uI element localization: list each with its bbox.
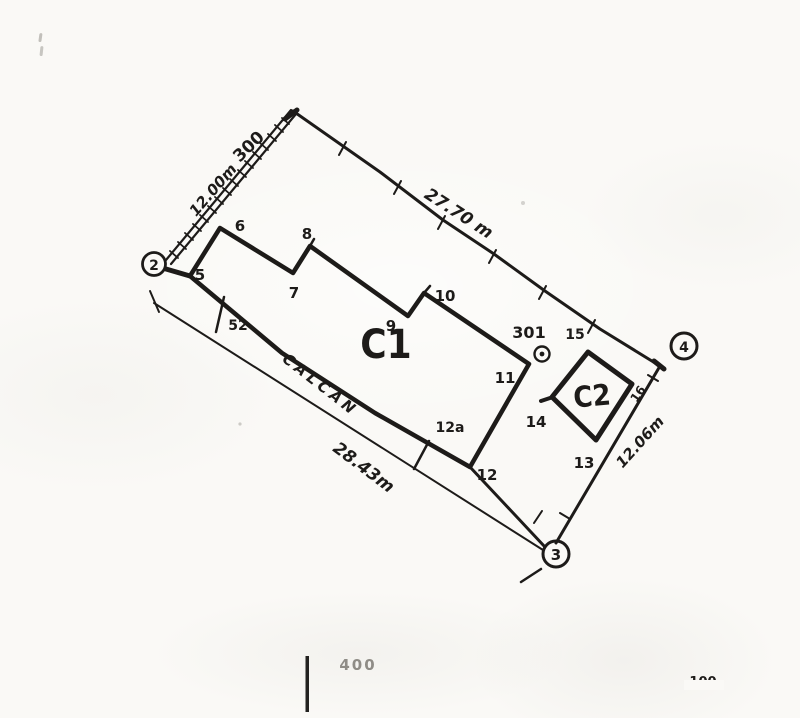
point-7-label: 7 <box>289 284 299 302</box>
corner-mark-4 <box>654 361 664 369</box>
point-11-label: 11 <box>495 369 516 387</box>
point-301-marker-dot <box>540 352 545 357</box>
dimension-start-tick <box>150 291 159 312</box>
point-9-label: 9 <box>386 317 396 335</box>
street-frontage-rail-inner <box>171 114 296 264</box>
point-300-label: 300 <box>229 127 269 166</box>
point-13-label: 13 <box>574 454 595 472</box>
point-52-label: 52 <box>228 318 247 334</box>
street-frontage-hatching <box>170 118 289 258</box>
building-c2-corner-nub <box>541 397 553 401</box>
station-2-label: 2 <box>149 258 159 274</box>
scanned-page: 2 3 4 C1 C2 12.00m 27.70 m 28.43m 12.06m… <box>0 0 800 718</box>
building-c2-label: C2 <box>572 377 612 414</box>
point-15-label: 15 <box>565 327 584 343</box>
dimension-line <box>154 303 543 550</box>
wall-tick-12a <box>414 441 429 469</box>
station-4-label: 4 <box>679 340 689 356</box>
point-301-label: 301 <box>512 323 545 342</box>
point-10-label: 10 <box>435 287 456 305</box>
margin-number-400: 400 <box>339 656 376 674</box>
point-12a-label: 12a <box>436 420 465 436</box>
corner-mark-5 <box>166 269 190 276</box>
building-c1-corner-overshoots <box>310 239 430 293</box>
station-3-label: 3 <box>551 546 561 564</box>
point-12-label: 12 <box>477 466 498 484</box>
point-14-label: 14 <box>526 413 547 431</box>
margin-vertical-line <box>306 656 310 712</box>
cadastral-plan-drawing: 2 3 4 C1 C2 12.00m 27.70 m 28.43m 12.06m… <box>0 0 800 718</box>
scan-speck-top-left-1 <box>38 33 42 42</box>
scan-speck-dot-2 <box>238 422 241 425</box>
dimension-end-tick <box>534 511 542 523</box>
scan-speck-dot-1 <box>521 201 525 205</box>
point-6-label: 6 <box>235 217 245 235</box>
scan-cutoff-mask <box>684 680 724 690</box>
station-3-approach-slash <box>521 569 541 582</box>
point-8-label: 8 <box>302 225 312 243</box>
dimension-right-12-06m: 12.06m <box>612 413 668 472</box>
point-5-label: 5 <box>195 266 205 284</box>
dimension-bottom-28-43m: 28.43m <box>329 438 398 497</box>
dimension-top-27-70m: 27.70 m <box>421 184 497 243</box>
scan-speck-top-left-2 <box>39 46 43 56</box>
